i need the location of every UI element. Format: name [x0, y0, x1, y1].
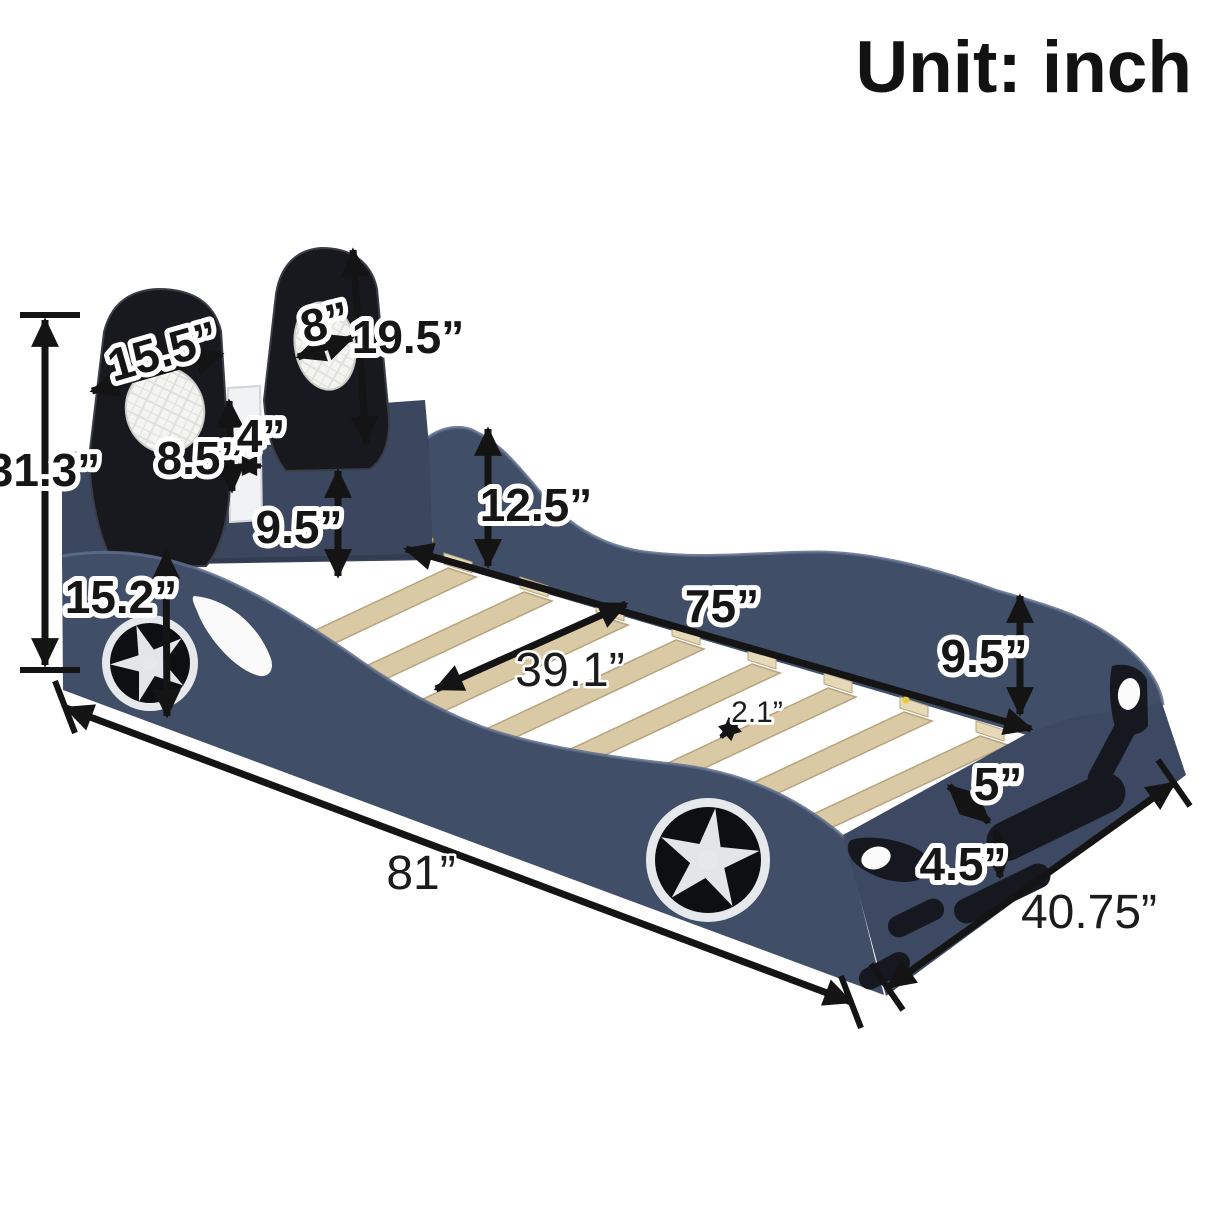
dim-label-interior-width: 39.1” — [515, 644, 624, 697]
dim-label-overall-height: 31.3” — [0, 444, 100, 496]
dim-label-overall-length: 81” — [386, 847, 455, 900]
rear-wheel — [646, 798, 770, 922]
product-dimension-diagram: 15.5” 8” 19.5” 8.5” 4” 31.3” 15.2” — [0, 0, 1214, 1214]
dim-label-headboard-wall-height: 12.5” — [480, 479, 593, 531]
dim-seat-gap: 4” — [237, 410, 286, 466]
dim-label-bumper-height: 4.5” — [920, 838, 1007, 890]
dim-label-side-rail-inner-height: 9.5” — [256, 501, 343, 553]
screw-dot — [903, 697, 910, 704]
dim-label-foot-rail-inner-height: 9.5” — [941, 630, 1028, 682]
dim-bumper-height: 4.5” — [920, 831, 1007, 890]
dim-label-seat-back-height: 19.5” — [352, 311, 465, 363]
dim-label-interior-length: 75” — [685, 580, 759, 632]
unit-label: Unit: inch — [855, 27, 1192, 108]
dim-label-bumper-top-offset: 5” — [974, 758, 1023, 810]
dim-label-overall-width: 40.75” — [1021, 886, 1157, 939]
car-bed-dimension-illustration: 15.5” 8” 19.5” 8.5” 4” 31.3” 15.2” — [0, 0, 1214, 1214]
dim-label-slat-gap: 2.1” — [731, 696, 783, 729]
dim-label-seat-lower-height: 8.5” — [157, 432, 244, 484]
dim-label-front-side-height: 15.2” — [65, 571, 178, 623]
dim-label-seat-gap: 4” — [237, 410, 286, 462]
